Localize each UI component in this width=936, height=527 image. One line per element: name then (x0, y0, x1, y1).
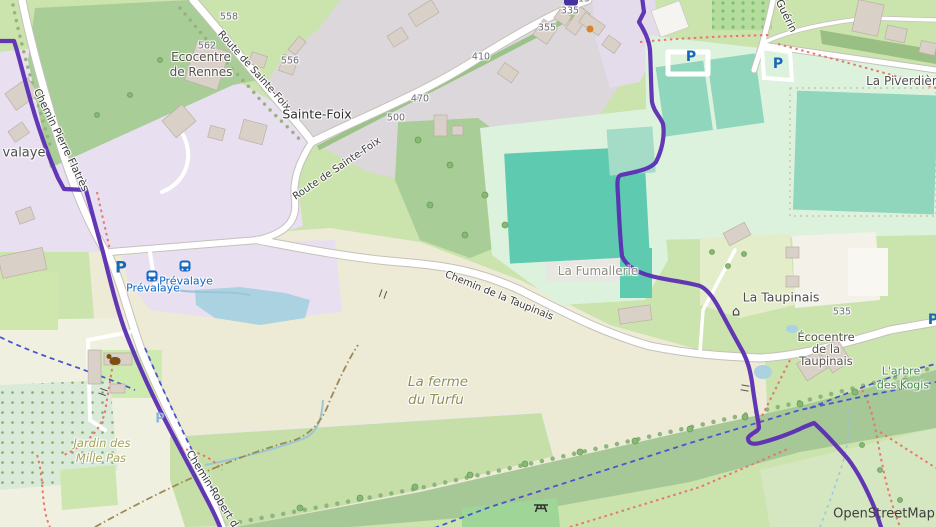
parking-icon: P (115, 258, 127, 277)
place-label-prevalaye-clipped: valaye (3, 146, 46, 161)
place-label-la-fumallerie: La Fumallerie (558, 264, 638, 278)
private-parking-icon: P (155, 412, 165, 427)
housenumber-410: 410 (472, 52, 490, 63)
landcover-layer (0, 0, 936, 527)
housenumber-558: 558 (220, 12, 238, 23)
garden-label-arbre-kogis: L'arbre (882, 365, 920, 378)
farm-label-ferme-turfu: La ferme (408, 374, 468, 390)
housenumber-500: 500 (387, 113, 405, 124)
housenumber-355: 355 (538, 23, 556, 34)
place-label-la-taupinais: La Taupinais (743, 290, 820, 305)
farm-label-ferme-turfu: du Turfu (408, 392, 464, 408)
garden-label-arbre-kogis: des Kogis (877, 379, 929, 392)
attribution-link[interactable]: OpenStreetMap (833, 507, 935, 522)
poi-label-ecocentre-taupinais: Taupinais (799, 354, 852, 368)
map-canvas[interactable] (0, 0, 936, 527)
parking-icon: P (928, 312, 936, 328)
housenumber-556: 556 (281, 56, 299, 67)
parking-icon: P (686, 49, 696, 65)
map-viewport[interactable]: 558 562 556 500 470 410 355 335 315 535 … (0, 0, 936, 527)
farm-animal-icon (110, 357, 121, 365)
poi-label-ecocentre-rennes: Ecocentre (171, 50, 231, 64)
housenumber-470: 470 (411, 94, 429, 105)
shelter-hut-icon: ⌂ (732, 305, 740, 320)
bus-stop-icon (147, 271, 158, 282)
poi-dot-icon (587, 26, 594, 33)
route-endpoint-marker (564, 0, 578, 6)
bus-stop-icon (180, 261, 191, 272)
garden-label-jardin-mille-pas: Mille Pas (76, 451, 126, 465)
place-label-la-piverdiere: La Piverdière (866, 74, 936, 88)
poi-label-ecocentre-rennes: de Rennes (170, 65, 233, 79)
housenumber-335: 335 (561, 6, 579, 17)
bus-stop-label-prevalaye: Prévalaye (159, 275, 213, 288)
place-label-sainte-foix: Sainte-Foix (282, 107, 351, 122)
garden-label-jardin-mille-pas: Jardin des (74, 436, 131, 450)
housenumber-535: 535 (833, 307, 851, 318)
gate-icon (741, 384, 750, 391)
parking-icon: P (773, 56, 783, 72)
